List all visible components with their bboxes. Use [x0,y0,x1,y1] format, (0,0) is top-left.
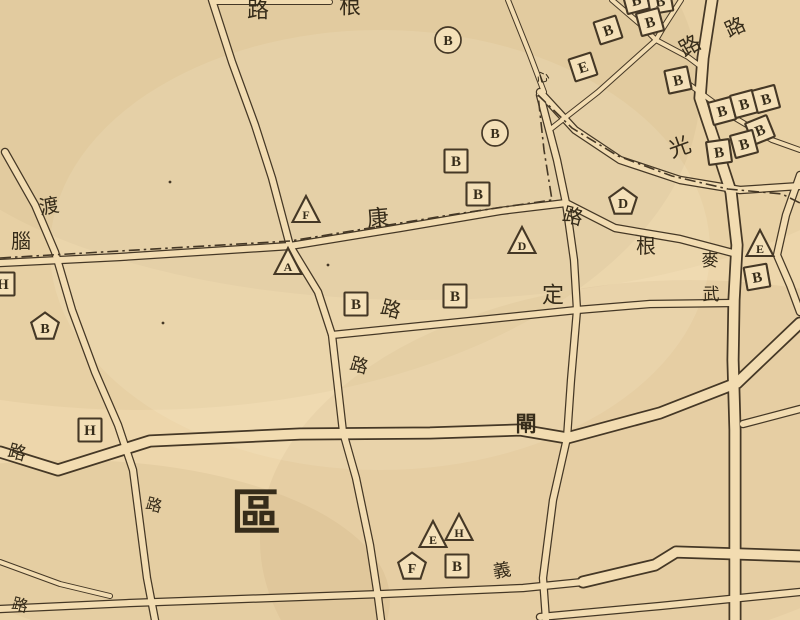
marker-letter: E [756,242,764,256]
marker-square-B: B [744,264,771,291]
marker-square-B: B [467,183,490,206]
historical-street-map: BBBBEBBBBBBBBBBBHHBBBBBDFFADEEH路根路路心光渡腦康… [0,0,800,620]
marker-letter: F [408,562,417,577]
road-name-label: 路 [247,0,269,24]
marker-square-B: B [752,85,780,113]
marker-letter: D [618,197,628,212]
marker-square-B: B [446,555,469,578]
paper-highlight [50,30,710,470]
road-name-label: 武 [703,285,720,305]
road-name-label: 區 [231,484,281,542]
map-canvas: BBBBEBBBBBBBBBBBHHBBBBBDFFADEEH路根路路心光渡腦康… [0,0,800,620]
marker-letter: E [429,533,437,547]
marker-square-B: B [636,8,664,36]
marker-letter: D [518,239,527,253]
road-name-label: 康 [366,206,390,233]
marker-letter: H [454,526,464,540]
marker-circle-B: B [482,120,508,146]
road-name-label: 定 [542,284,564,309]
marker-square-B: B [706,139,732,165]
marker-square-B: B [730,130,758,158]
marker-letter: B [443,34,452,49]
road-name-label: 腦 [11,229,31,253]
marker-letter: B [40,322,49,337]
marker-letter: H [84,423,96,439]
marker-letter: B [452,559,462,575]
ink-speck [327,264,330,267]
marker-square-B: B [444,285,467,308]
marker-letter: H [0,277,9,293]
road-name-label: 麥 [702,251,719,271]
ink-speck [169,181,172,184]
marker-letter: B [351,297,361,313]
road-name-label: 根 [339,0,361,20]
marker-letter: B [451,154,461,170]
marker-square-B: B [345,293,368,316]
marker-square-B: B [445,150,468,173]
road-name-label: 義 [491,559,512,583]
marker-circle-B: B [435,27,461,53]
road-name-label: 渡 [37,192,61,219]
marker-letter: B [473,187,483,203]
marker-square-B: B [664,66,691,93]
marker-letter: F [302,208,309,222]
marker-square-H: H [79,419,102,442]
marker-letter: A [284,260,293,274]
road-name-label: 閘 [516,412,537,436]
ink-speck [162,322,165,325]
marker-square-H: H [0,273,15,296]
road-name-label: 根 [636,234,656,258]
marker-letter: B [490,127,499,142]
marker-letter: B [450,289,460,305]
